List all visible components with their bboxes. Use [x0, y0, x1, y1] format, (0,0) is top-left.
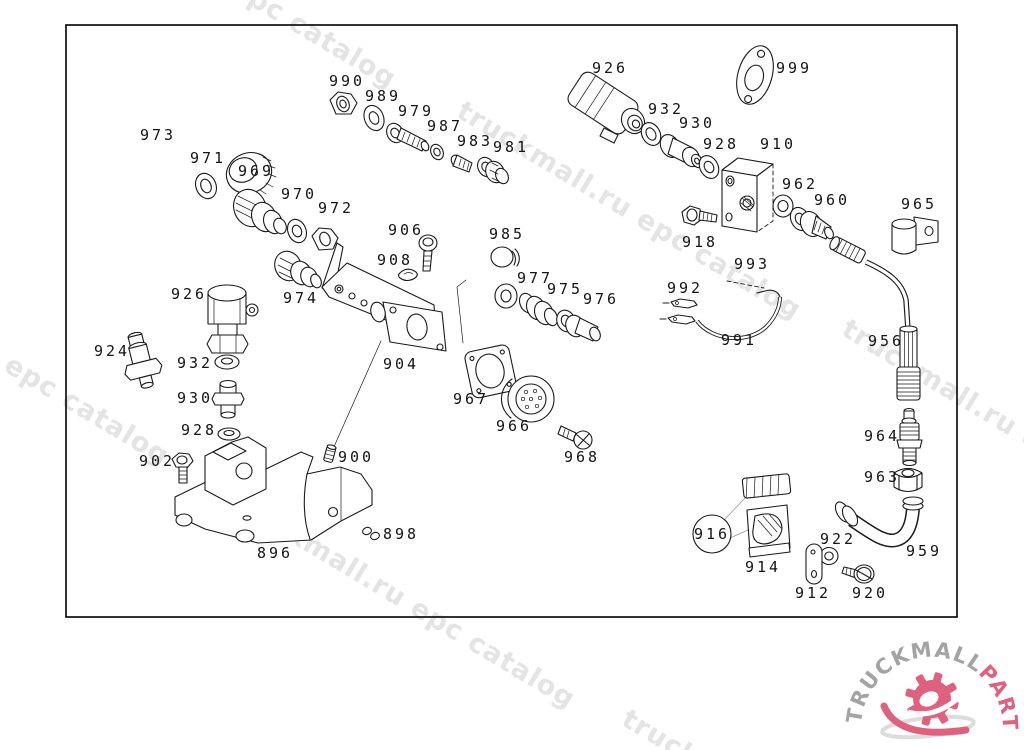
part-962-drawing: [773, 195, 793, 217]
part-label-906: 906: [388, 221, 424, 239]
part-label-975: 975: [547, 280, 583, 298]
part-label-914: 914: [745, 558, 781, 576]
part-label-991: 991: [721, 331, 757, 349]
part-label-930: 930: [679, 114, 715, 132]
part-label-930: 930: [177, 389, 213, 407]
part-label-928: 928: [181, 421, 217, 439]
part-label-992: 992: [667, 279, 703, 297]
part-label-981: 981: [493, 138, 529, 156]
part-label-910: 910: [760, 135, 796, 153]
part-label-918: 918: [682, 233, 718, 251]
part-label-926: 926: [171, 285, 207, 303]
part-label-971: 971: [190, 149, 226, 167]
part-label-990: 990: [329, 72, 365, 90]
part-label-976: 976: [583, 290, 619, 308]
parts-diagram-canvas: truckmall.ru epc catalogtruckmall.ru epc…: [0, 0, 1024, 750]
balloon-916-label: 916: [694, 525, 730, 543]
part-912-drawing: [806, 544, 822, 584]
part-label-989: 989: [365, 87, 401, 105]
part-977-drawing: [495, 284, 517, 308]
part-label-985: 985: [489, 225, 525, 243]
part-label-967: 967: [453, 390, 489, 408]
part-label-896: 896: [257, 544, 293, 562]
part-label-974: 974: [283, 289, 319, 307]
part-label-968: 968: [564, 448, 600, 466]
part-label-924: 924: [94, 342, 130, 360]
part-922-drawing: [820, 548, 838, 565]
part-label-898: 898: [383, 525, 419, 543]
part-label-962: 962: [782, 175, 818, 193]
part-label-963: 963: [864, 468, 900, 486]
part-label-970: 970: [281, 185, 317, 203]
part-label-956: 956: [868, 332, 904, 350]
part-label-993: 993: [734, 255, 770, 273]
part-label-960: 960: [814, 191, 850, 209]
part-label-912: 912: [795, 584, 831, 602]
part-label-999: 999: [776, 59, 812, 77]
part-label-908: 908: [377, 251, 413, 269]
part-label-959: 959: [906, 542, 942, 560]
part-label-926: 926: [592, 59, 628, 77]
part-label-922: 922: [820, 530, 856, 548]
part-label-965: 965: [901, 195, 937, 213]
part-label-964: 964: [864, 427, 900, 445]
part-label-900: 900: [338, 448, 374, 466]
part-label-973: 973: [140, 126, 176, 144]
part-label-902: 902: [139, 452, 175, 470]
part-label-920: 920: [852, 584, 888, 602]
part-928-left-drawing: [218, 428, 240, 440]
part-label-932: 932: [177, 354, 213, 372]
part-label-966: 966: [496, 417, 532, 435]
part-label-969: 969: [238, 162, 274, 180]
part-label-928: 928: [703, 135, 739, 153]
part-label-972: 972: [318, 199, 354, 217]
part-label-904: 904: [383, 355, 419, 373]
part-914-drawing: [742, 474, 791, 557]
part-label-983: 983: [457, 132, 493, 150]
part-932-left-drawing: [215, 355, 239, 369]
